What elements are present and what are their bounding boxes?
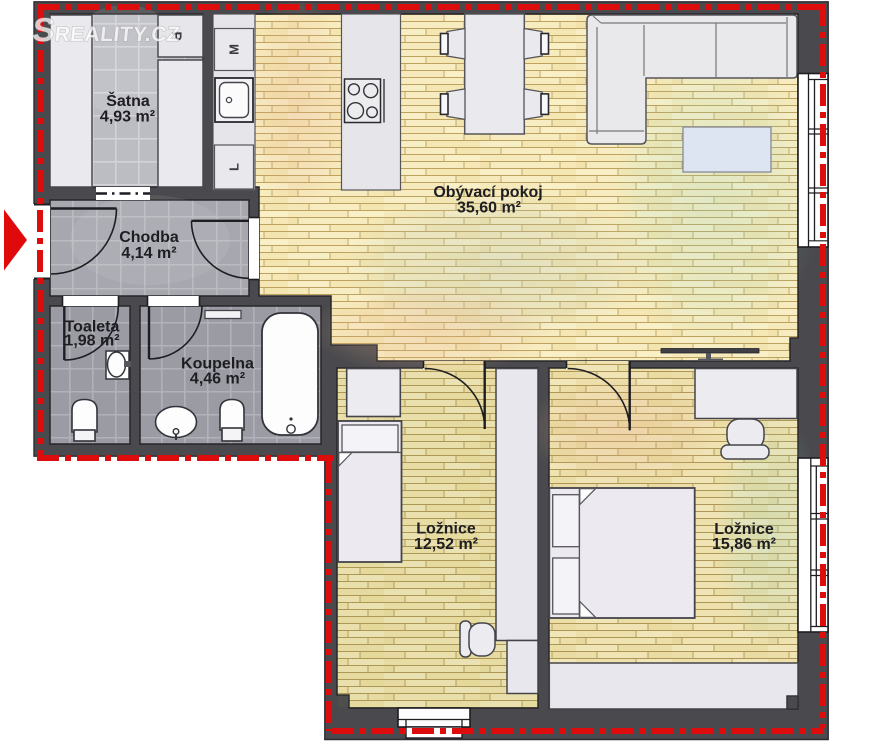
svg-text:12,52 m²: 12,52 m²: [414, 536, 478, 553]
svg-text:4,46 m²: 4,46 m²: [190, 371, 245, 388]
svg-text:1,98 m²: 1,98 m²: [64, 333, 119, 350]
svg-text:35,60 m²: 35,60 m²: [457, 200, 521, 217]
svg-text:Ložnice: Ložnice: [416, 521, 476, 538]
svg-text:Chodba: Chodba: [119, 229, 179, 246]
svg-text:Šatna: Šatna: [106, 91, 150, 110]
svg-text:15,86 m²: 15,86 m²: [712, 536, 776, 553]
svg-text:M: M: [227, 44, 242, 55]
svg-text:4,14 m²: 4,14 m²: [121, 245, 176, 262]
svg-text:4,93 m²: 4,93 m²: [100, 109, 155, 126]
svg-text:L: L: [227, 163, 242, 171]
svg-text:Obývací pokoj: Obývací pokoj: [433, 184, 542, 201]
